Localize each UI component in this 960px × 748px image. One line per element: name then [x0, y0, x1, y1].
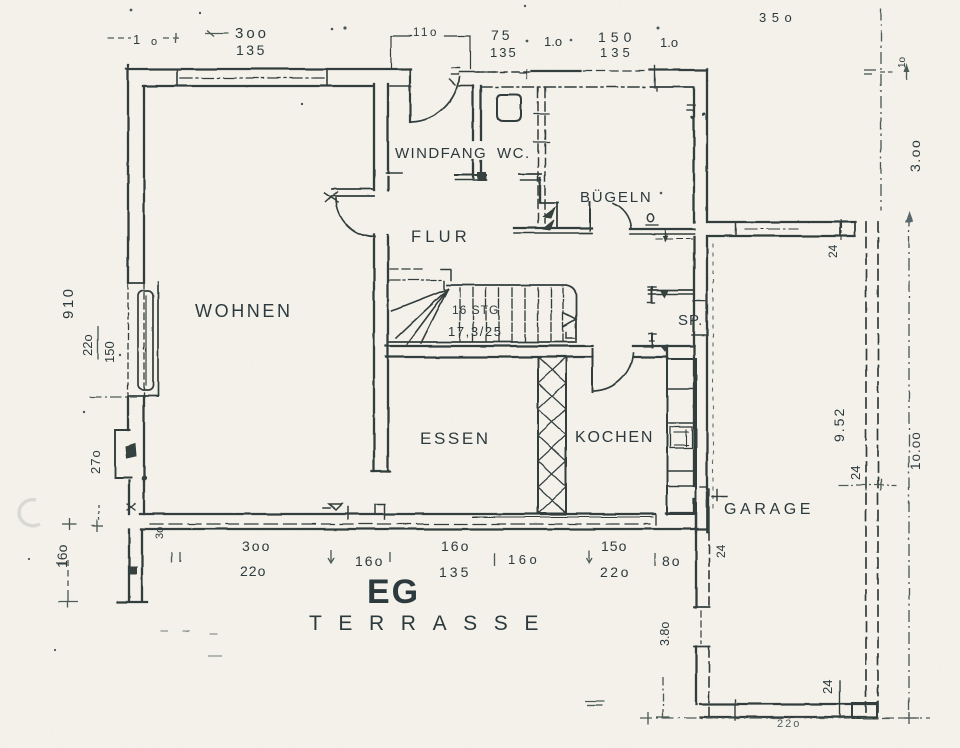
- svg-text:3oo: 3oo: [235, 25, 269, 42]
- svg-text:o: o: [151, 36, 157, 48]
- svg-text:16o: 16o: [508, 552, 540, 567]
- svg-text:16o: 16o: [54, 544, 70, 568]
- svg-text:16 STG: 16 STG: [452, 303, 499, 317]
- svg-text:910: 910: [60, 286, 77, 319]
- svg-text:35o: 35o: [759, 10, 797, 25]
- svg-text:24: 24: [714, 544, 728, 558]
- svg-text:1o: 1o: [897, 56, 908, 68]
- svg-text:17,3/25: 17,3/25: [448, 324, 503, 339]
- svg-text:16o: 16o: [355, 553, 384, 569]
- svg-text:1: 1: [133, 32, 140, 47]
- svg-text:9.52: 9.52: [831, 407, 847, 442]
- svg-text:3.oo: 3.oo: [907, 139, 923, 172]
- svg-text:1.o: 1.o: [660, 35, 678, 50]
- svg-text:WINDFANG: WINDFANG: [395, 145, 487, 162]
- svg-text:3o: 3o: [154, 527, 166, 539]
- svg-text:135: 135: [236, 42, 267, 58]
- svg-text:1.o: 1.o: [544, 34, 562, 49]
- svg-text:27o: 27o: [88, 449, 103, 474]
- svg-text:11o: 11o: [413, 27, 439, 39]
- svg-text:24: 24: [848, 466, 863, 480]
- svg-text:135: 135: [490, 45, 518, 60]
- svg-text:22o: 22o: [600, 564, 631, 580]
- svg-text:SP.: SP.: [678, 312, 703, 329]
- svg-text:135: 135: [600, 45, 634, 60]
- svg-text:135: 135: [439, 564, 471, 580]
- svg-text:16o: 16o: [441, 538, 470, 554]
- svg-text:WOHNEN: WOHNEN: [195, 301, 293, 321]
- svg-text:22o: 22o: [240, 563, 266, 579]
- svg-text:22o: 22o: [777, 718, 801, 730]
- svg-text:22o: 22o: [80, 334, 95, 356]
- svg-text:1o.oo: 1o.oo: [908, 431, 923, 470]
- svg-text:BÜGELN: BÜGELN: [580, 188, 653, 206]
- svg-text:ESSEN: ESSEN: [420, 429, 491, 448]
- svg-text:8o: 8o: [662, 553, 682, 569]
- svg-text:15o: 15o: [601, 538, 627, 554]
- svg-text:GARAGE: GARAGE: [724, 501, 814, 518]
- svg-text:KOCHEN: KOCHEN: [575, 429, 654, 446]
- svg-text:150: 150: [102, 341, 117, 363]
- svg-text:EG: EG: [367, 573, 420, 611]
- svg-text:24: 24: [820, 680, 835, 694]
- svg-text:3oo: 3oo: [242, 538, 271, 554]
- svg-text:3.8o: 3.8o: [658, 622, 672, 646]
- svg-text:FLUR: FLUR: [411, 228, 471, 246]
- svg-text:24: 24: [826, 244, 840, 258]
- svg-text:TERRASSE: TERRASSE: [309, 612, 555, 635]
- svg-text:WC.: WC.: [497, 145, 531, 162]
- svg-text:75: 75: [491, 27, 513, 43]
- svg-text:150: 150: [598, 29, 636, 45]
